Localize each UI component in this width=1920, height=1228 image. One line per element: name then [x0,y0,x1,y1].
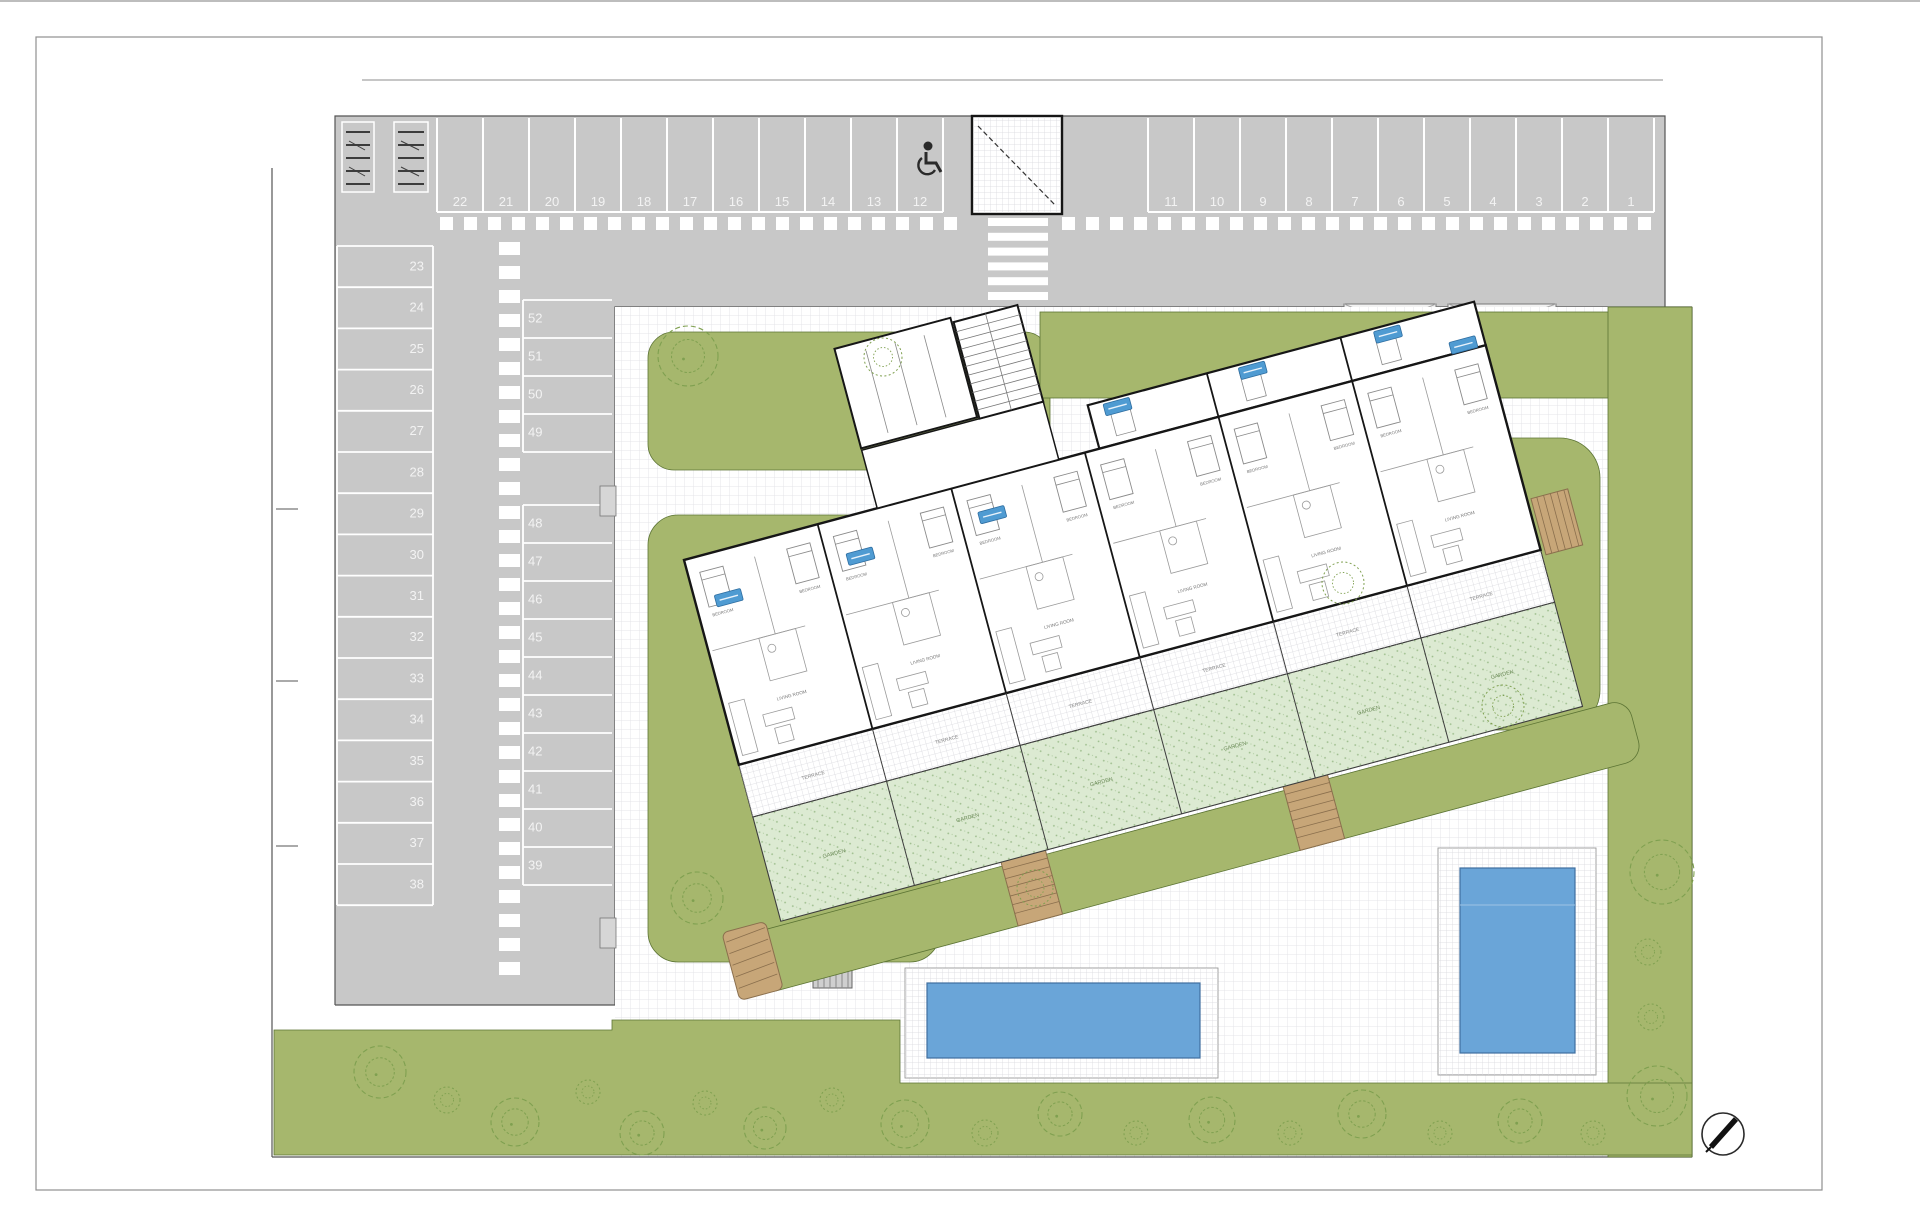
crosswalk-dash [656,217,669,230]
parking-stall-number: 35 [410,753,424,768]
crosswalk-dash [1254,217,1267,230]
crosswalk-dash [1206,217,1219,230]
parking-stall-number: 2 [1581,194,1588,209]
tree-center [900,1125,903,1128]
crosswalk-dash [800,217,813,230]
parking-stall-number: 11 [1164,194,1178,209]
parking-stall-number: 5 [1443,194,1450,209]
walkway-dash [499,962,520,975]
tree-center [1207,1121,1210,1124]
walkway-dash [499,698,520,711]
tree-center [375,1073,378,1076]
site-plan-drawing: 2221201918171615141312111098765432123242… [0,0,1920,1228]
crosswalk-dash [1134,217,1147,230]
crosswalk-dash [824,217,837,230]
zebra-crossing-bar [988,277,1048,285]
walkway-dash [499,362,520,375]
parking-stall-number: 25 [410,341,424,356]
walkway-dash [499,410,520,423]
parking-stall-number: 4 [1489,194,1496,209]
crosswalk-dash [704,217,717,230]
walkway-dash [499,338,520,351]
tree-center [760,1129,763,1132]
parking-stall-number: 14 [821,194,835,209]
crosswalk-dash [1350,217,1363,230]
zebra-crossing-bar [988,218,1048,226]
zebra-crossing-bar [988,292,1048,300]
parking-stall-number: 51 [528,348,542,363]
crosswalk-dash [896,217,909,230]
tree-center [1651,1098,1654,1101]
parking-stall-number: 13 [867,194,881,209]
walkway-dash [499,602,520,615]
crosswalk-dash [872,217,885,230]
walkway-dash [499,554,520,567]
crosswalk-dash [776,217,789,230]
walkway-dash [499,290,520,303]
crosswalk-dash [632,217,645,230]
crosswalk-dash [1446,217,1459,230]
crosswalk-dash [1638,217,1651,230]
crosswalk-dash [752,217,765,230]
walkway-dash [499,434,520,447]
parking-stall-number: 30 [410,547,424,562]
walkway-dash [499,314,520,327]
tree-center [1656,874,1659,877]
walkway-dash [499,650,520,663]
walkway-dash [499,674,520,687]
crosswalk-dash [920,217,933,230]
left-parking-column [335,116,615,1005]
walkway-dash [499,458,520,471]
crosswalk-dash [560,217,573,230]
walkway-dash [499,866,520,879]
parking-stall-number: 38 [410,876,424,891]
parking-stall-number: 43 [528,705,542,720]
walkway-dash [499,266,520,279]
walkway-dash [499,722,520,735]
parking-stall-number: 22 [453,194,467,209]
parking-stall-number: 36 [410,794,424,809]
tree-center [1055,1115,1058,1118]
parking-stall-number: 7 [1351,194,1358,209]
parking-stall-number: 21 [499,194,513,209]
parking-stall-number: 40 [528,819,542,834]
crosswalk-dash [1398,217,1411,230]
parking-stall-number: 15 [775,194,789,209]
parking-stall-number: 8 [1305,194,1312,209]
zebra-crossing-bar [988,248,1048,256]
crosswalk-dash [1422,217,1435,230]
parking-stall-number: 1 [1627,194,1634,209]
crosswalk-dash [1086,217,1099,230]
crosswalk-dash [584,217,597,230]
crosswalk-dash [1158,217,1171,230]
parking-stall-number: 44 [528,667,542,682]
walkway-dash [499,914,520,927]
walkway-dash [499,482,520,495]
parking-stall-number: 20 [545,194,559,209]
parking-stall-number: 50 [528,386,542,401]
parking-stall-number: 49 [528,424,542,439]
zebra-crossing-bar [988,233,1048,241]
parking-stall-number: 19 [591,194,605,209]
swimming-pool-east [1460,868,1575,1053]
parking-stall-number: 41 [528,781,542,796]
walkway-dash [499,578,520,591]
crosswalk-dash [848,217,861,230]
crosswalk-dash [440,217,453,230]
parking-stall-number: 23 [410,258,424,273]
parking-stall-number: 24 [410,300,424,315]
crosswalk-dash [1566,217,1579,230]
parking-stall-number: 6 [1397,194,1404,209]
walkway-dash [499,890,520,903]
parking-stall-number: 9 [1259,194,1266,209]
walkway-dash [499,794,520,807]
walkway-dash [499,770,520,783]
walkway-dash [499,626,520,639]
parking-stall-number: 39 [528,857,542,872]
crosswalk-dash [1278,217,1291,230]
site-plan-page: 2221201918171615141312111098765432123242… [0,0,1920,1228]
north-arrow-compass [1702,1113,1744,1155]
crosswalk-dash [1494,217,1507,230]
crosswalk-dash [1470,217,1483,230]
parking-stall-number: 28 [410,464,424,479]
swimming-pool-main [927,983,1200,1058]
parking-stall-number: 17 [683,194,697,209]
parking-stall-number: 29 [410,506,424,521]
crosswalk-dash [1302,217,1315,230]
parking-stall-number: 52 [528,310,542,325]
parking-stall-number: 37 [410,835,424,850]
crosswalk-dash [464,217,477,230]
walkway-dash [499,386,520,399]
tree-center [682,358,685,361]
zebra-crossing-bar [988,262,1048,270]
parking-stall-number: 32 [410,629,424,644]
crosswalk-dash [1326,217,1339,230]
parking-stall-number: 3 [1535,194,1542,209]
parking-stall-number: 45 [528,629,542,644]
crosswalk-dash [1230,217,1243,230]
tree-center [692,899,695,902]
crosswalk-dash [536,217,549,230]
parking-stall-number: 47 [528,553,542,568]
walkway-dash [499,242,520,255]
tree-center [637,1134,640,1137]
parking-stall-number: 26 [410,382,424,397]
tree-center [1357,1115,1360,1118]
crosswalk-dash [728,217,741,230]
crosswalk-dash [512,217,525,230]
crosswalk-dash [1062,217,1075,230]
parking-stall-number: 12 [913,194,927,209]
crosswalk-dash [608,217,621,230]
parking-stall-number: 42 [528,743,542,758]
crosswalk-dash [1614,217,1627,230]
walkway-dash [499,530,520,543]
parking-stall-number: 27 [410,423,424,438]
parking-stall-number: 33 [410,670,424,685]
path-ramp [600,918,616,948]
crosswalk-dash [1110,217,1123,230]
tree-center [1515,1122,1518,1125]
parking-stall-number: 10 [1210,194,1224,209]
walkway-dash [499,842,520,855]
walkway-dash [499,818,520,831]
parking-stall-number: 48 [528,515,542,530]
crosswalk-dash [1590,217,1603,230]
walkway-dash [499,506,520,519]
crosswalk-dash [680,217,693,230]
parking-stall-number: 46 [528,591,542,606]
wheelchair-head [924,142,933,151]
crosswalk-dash [944,217,957,230]
tree-center [510,1123,513,1126]
walkway-dash [499,938,520,951]
parking-stall-number: 16 [729,194,743,209]
crosswalk-dash [1542,217,1555,230]
crosswalk-dash [1518,217,1531,230]
parking-stall-number: 31 [410,588,424,603]
crosswalk-dash [1182,217,1195,230]
entrance-vestibule-floor [973,117,1061,213]
crosswalk-dash [1374,217,1387,230]
parking-stall-number: 18 [637,194,651,209]
parking-stall-number: 34 [410,712,424,727]
crosswalk-dash [488,217,501,230]
path-ramp [600,486,616,516]
window-top-edge [0,0,1920,2]
walkway-dash [499,746,520,759]
